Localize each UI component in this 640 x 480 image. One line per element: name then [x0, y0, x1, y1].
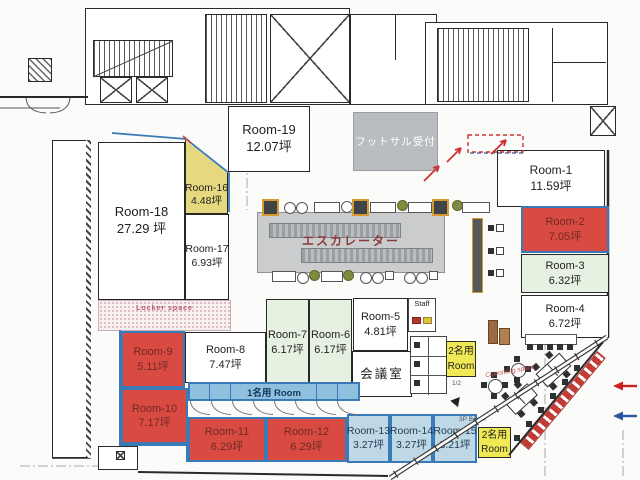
- bench-seat: [321, 271, 343, 282]
- table-round: [296, 202, 308, 214]
- escalator-label: エスカレーター: [258, 232, 444, 249]
- locker-space: Locker space: [98, 300, 231, 331]
- room-18: Room-18 27.29 坪: [98, 142, 185, 300]
- plant: [343, 270, 354, 281]
- bench-seat: [408, 202, 432, 213]
- bench-chair: [550, 393, 556, 399]
- table-chair: [502, 382, 508, 388]
- room-label: Room-6: [311, 328, 350, 342]
- kiosk-box: [432, 199, 449, 216]
- futsal-reception: フットサル受付: [353, 112, 438, 171]
- table-chair: [514, 356, 520, 362]
- bench-chair: [514, 435, 520, 441]
- bench-chair: [538, 407, 544, 413]
- two-person-room-label-1: 2名用: [482, 429, 508, 443]
- room-size: 6.32坪: [549, 274, 581, 288]
- booth-divider: [230, 384, 231, 399]
- room-size: 3.27坪: [353, 439, 384, 453]
- room-label: Room-7: [268, 328, 307, 342]
- table-round: [360, 272, 372, 284]
- desk-chair: [567, 344, 573, 350]
- booth-seat: [414, 342, 420, 348]
- floor-plan: Room-18 27.29 坪 Room-16 4.48坪 Room-17 6.…: [0, 0, 640, 480]
- room-label: Room-14: [390, 425, 433, 439]
- room-label: Room-16: [185, 182, 228, 196]
- room-12: Room-12 6.29坪: [266, 417, 347, 462]
- room-5: Room-5 4.81坪: [353, 298, 408, 351]
- table-round: [297, 272, 309, 284]
- room-size: 6.17坪: [314, 343, 346, 357]
- room-11: Room-11 6.29坪: [188, 417, 266, 462]
- room-1: Room-1 11.59坪: [497, 150, 605, 207]
- bench-seat: [370, 202, 396, 213]
- desk-chair: [547, 344, 553, 350]
- utility-icon: [116, 451, 125, 460]
- meeting-room: 会議室: [352, 351, 412, 397]
- room-label: Room-18: [115, 204, 168, 221]
- booth-divider-h1: [411, 356, 448, 357]
- meeting-room-label: 会議室: [360, 366, 404, 382]
- room-label: Room-5: [361, 310, 400, 324]
- room-size: 4.81坪: [364, 325, 396, 339]
- booth-divider: [337, 384, 338, 399]
- room-17: Room-17 6.93坪: [185, 214, 229, 300]
- counter-table: [496, 247, 504, 255]
- room-4: Room-4 6.72坪: [521, 295, 609, 338]
- room-label: Room-4: [545, 302, 584, 316]
- two-person-room-label-2: Room: [481, 443, 508, 457]
- booth-divider-h2: [411, 375, 448, 376]
- bench-chair: [526, 421, 532, 427]
- table-round: [416, 272, 428, 284]
- room-size: 6.17坪: [271, 343, 303, 357]
- table-chair: [491, 393, 497, 399]
- room-label: Room-11: [205, 425, 249, 439]
- room-label: Room-13: [347, 425, 390, 439]
- booth-block: [410, 336, 447, 394]
- left-corridor: [52, 140, 90, 458]
- two-person-room-label-2: Room: [448, 359, 475, 374]
- kiosk-box: [262, 199, 279, 216]
- room-19: Room-19 12.07坪: [228, 106, 310, 172]
- one-person-booth-row: 1名用 Room: [188, 382, 360, 401]
- room-size: 27.29 坪: [117, 221, 166, 238]
- desk-chair: [527, 344, 533, 350]
- cabinet: [499, 328, 510, 345]
- room-size: 7.47坪: [209, 358, 241, 372]
- room-size: 6.29坪: [211, 440, 243, 454]
- room-size: 12.07坪: [246, 139, 292, 156]
- counter-chair: [488, 225, 494, 231]
- room-size: 11.59坪: [530, 179, 571, 195]
- counter-desk: [472, 218, 483, 293]
- room-size: 6.72坪: [549, 317, 581, 331]
- counter-chair: [488, 248, 494, 254]
- table-chair: [481, 382, 487, 388]
- cabinet: [488, 320, 498, 344]
- room-label: Room-3: [545, 259, 584, 273]
- counter-table: [496, 224, 504, 232]
- futsal-reception-label: フットサル受付: [355, 134, 436, 149]
- room-size: 7.17坪: [138, 416, 170, 430]
- counter-chair: [488, 270, 494, 276]
- one-person-booth-label: 1名用 Room: [247, 385, 301, 399]
- desk-chair: [557, 344, 563, 350]
- bench-chair: [562, 379, 568, 385]
- room-10: Room-10 7.17坪: [121, 388, 188, 444]
- room-9: Room-9 5.11坪: [121, 331, 185, 388]
- booth-seat: [414, 380, 420, 386]
- room-size: 6.29坪: [290, 440, 322, 454]
- staff-area: Staff: [408, 298, 436, 332]
- booth-divider: [316, 384, 317, 399]
- two-person-room-mid: 2名用 Room: [446, 341, 476, 377]
- locker-space-label: Locker space: [136, 305, 193, 312]
- booth-divider: [209, 384, 210, 399]
- plant: [309, 270, 320, 281]
- table-round: [284, 202, 296, 214]
- room-size: 4.48坪: [191, 195, 222, 209]
- escalator-block: エスカレーター: [257, 212, 445, 273]
- round-table: [488, 379, 503, 394]
- room-6: Room-6 6.17坪: [309, 299, 352, 386]
- bench-seat: [462, 202, 490, 213]
- room-size: 3.21坪: [440, 439, 471, 453]
- room-label: Room-1: [530, 163, 573, 179]
- room-label: Room-10: [132, 402, 177, 416]
- escalator-run-down: [301, 248, 433, 263]
- room-label: Room-8: [206, 343, 245, 357]
- room-size: 6.93坪: [192, 257, 223, 271]
- table-round: [404, 272, 416, 284]
- left-wall-hatch: [86, 140, 91, 458]
- room-13: Room-13 3.27坪: [347, 414, 390, 463]
- plant: [397, 200, 408, 211]
- desk-chair: [537, 344, 543, 350]
- room-size: 5.11坪: [137, 360, 169, 374]
- room-2: Room-2 7.05坪: [521, 206, 609, 253]
- room-label: Room-19: [242, 122, 295, 139]
- bench-seat: [272, 271, 296, 282]
- room-3: Room-3 6.32坪: [521, 254, 609, 293]
- room-14: Room-14 3.27坪: [390, 414, 433, 463]
- room-label: Room-9: [133, 345, 172, 359]
- room-8: Room-8 7.47坪: [185, 332, 266, 383]
- table-round: [372, 272, 384, 284]
- booth-divider-v: [428, 337, 429, 395]
- room-label: Room-12: [284, 425, 329, 439]
- room-size: 7.05坪: [549, 230, 581, 244]
- bench-chair: [574, 365, 580, 371]
- table-square: [385, 271, 394, 280]
- room-7: Room-7 6.17坪: [266, 299, 309, 386]
- table-square: [429, 271, 438, 280]
- staff-label: Staff: [414, 299, 429, 308]
- room-label: Room-17: [185, 243, 228, 257]
- booth-seat: [414, 361, 420, 367]
- two-person-room-bottom: 2名用 Room: [478, 427, 511, 458]
- room-label: Room-15: [433, 425, 476, 439]
- fraction-label: 1/2: [452, 380, 461, 387]
- bp-booth-label: 3P Booth: [459, 416, 486, 423]
- counter-table: [496, 269, 504, 277]
- room-size: 3.27坪: [396, 439, 427, 453]
- kiosk-box: [352, 199, 369, 216]
- bench-seat: [314, 202, 340, 213]
- staff-icon-red: [412, 317, 421, 324]
- two-person-room-label-1: 2名用: [448, 344, 474, 359]
- staff-icon-yellow: [423, 317, 432, 324]
- room-label: Room-2: [545, 215, 584, 229]
